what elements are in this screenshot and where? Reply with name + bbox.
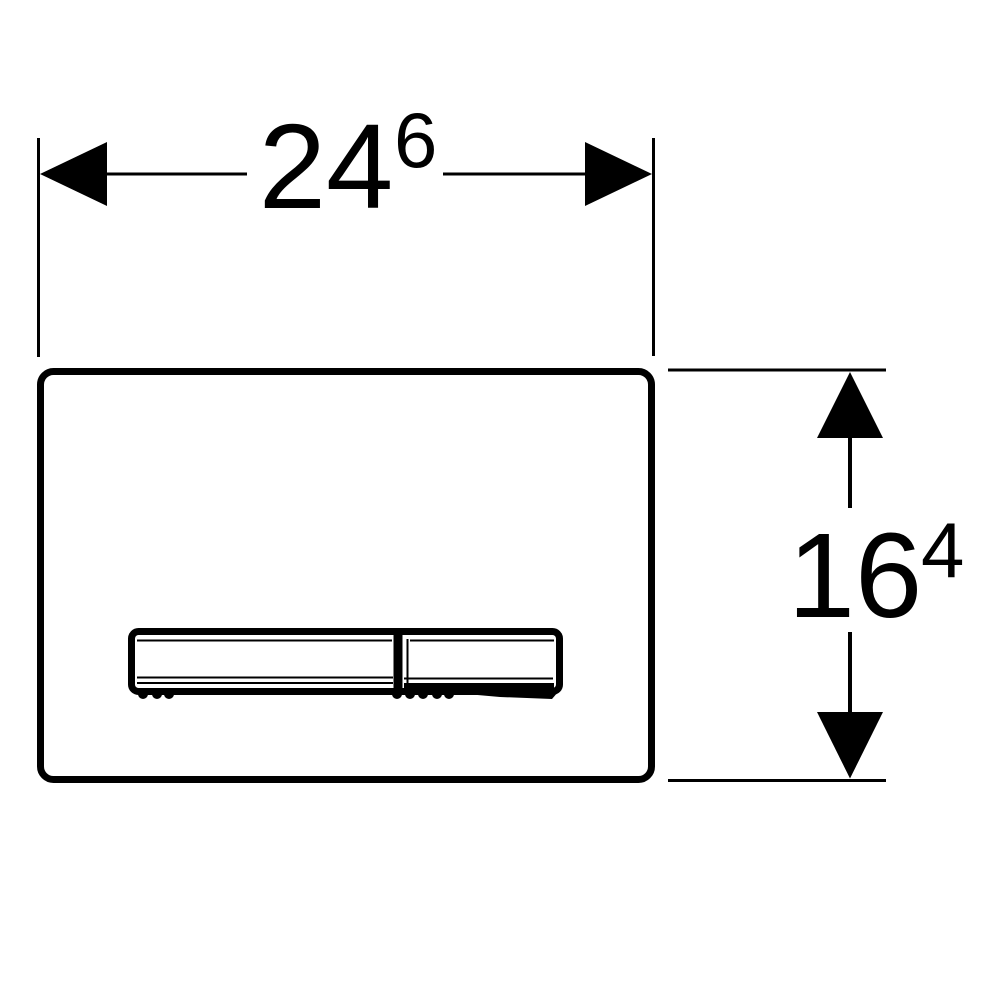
height-dimension-superscript: 4 [921,506,964,594]
width-dimension-superscript: 6 [394,96,437,184]
height-dimension-value: 16 [788,507,923,643]
flush-plate-dimension-drawing: 24 6 [0,0,1000,1000]
width-dimension: 24 6 [39,96,654,357]
flush-plate-outline [41,372,652,780]
height-arrow-up-icon [817,372,883,438]
button-panel [132,630,560,699]
width-arrow-left-icon [40,142,107,206]
height-arrow-down-icon [817,712,883,779]
height-dimension: 16 4 [668,370,964,781]
width-arrow-right-icon [585,142,652,206]
width-dimension-value: 24 [259,98,394,234]
drawing-canvas: 24 6 [0,0,1000,1000]
